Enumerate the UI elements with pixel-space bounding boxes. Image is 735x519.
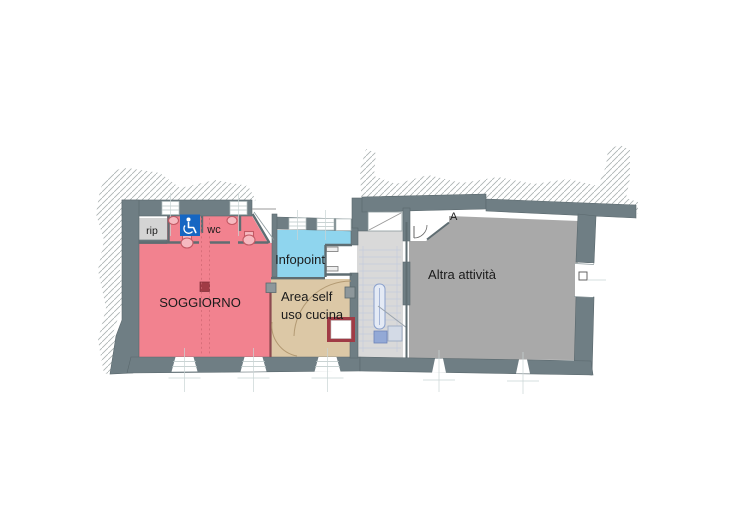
floor-plan-canvas: rip wc SOGGIORNO Infopoint Area self uso… [0, 0, 735, 519]
label-soggiorno: SOGGIORNO [159, 295, 241, 310]
label-entrance-a: A [450, 211, 458, 223]
label-wc: wc [206, 224, 221, 236]
right-door-symbol [579, 272, 587, 280]
label-rip: rip [146, 225, 158, 237]
label-altra-attivita: Altra attività [428, 267, 497, 282]
label-area-self-2: uso cucina [281, 307, 344, 322]
room-altra-attivita [409, 216, 579, 360]
wheelchair-icon [180, 215, 200, 237]
pillar-gray-1 [266, 283, 276, 293]
stair-landing [388, 326, 402, 341]
label-area-self-1: Area self [281, 289, 333, 304]
stairlift-seat [374, 331, 387, 343]
floor-plan-drawing: rip wc SOGGIORNO Infopoint Area self uso… [0, 0, 735, 519]
pillar-gray-2 [345, 287, 355, 298]
label-infopoint: Infopoint [275, 252, 325, 267]
